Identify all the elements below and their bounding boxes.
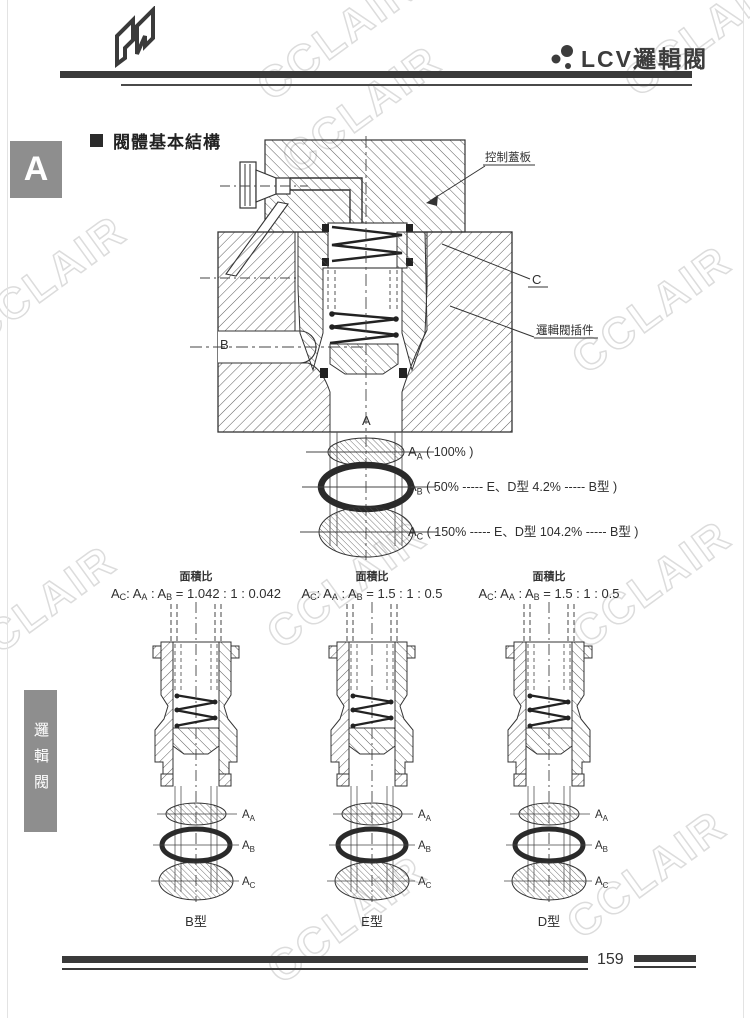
area-ratio-heading: 面積比: [180, 568, 213, 584]
watermark: CCLAIR: [0, 206, 136, 355]
valve-cross-section-figure: B A: [180, 128, 680, 570]
type-label: E型: [361, 911, 383, 930]
cartridge-drawing: [111, 602, 281, 907]
footer-rule-thin: [62, 968, 588, 970]
footer-rule-thick: [62, 956, 588, 963]
diagram-type-b: 面積比 AC: AA : AB = 1.042 : 1 : 0.042 B型: [111, 568, 281, 930]
page-edge-left: [7, 0, 8, 1018]
port-b-label: B: [220, 337, 229, 352]
diagram-type-d: 面積比 AC: AA : AB = 1.5 : 1 : 0.5 D型: [464, 568, 634, 930]
bullet-square-icon: [90, 134, 103, 147]
footer-rule-right: [634, 955, 696, 962]
area-ratio-heading: 面積比: [533, 568, 566, 584]
watermark: CCLAIR: [248, 0, 426, 111]
cartridge-drawing: [464, 602, 634, 907]
area-label-ab: AB ( 50% ----- E、D型 4.2% ----- B型 ): [408, 479, 617, 497]
type-label: B型: [185, 911, 207, 930]
page-title: LCV邏輯閥: [551, 40, 708, 74]
callout-cartridge-label: 邏輯閥插件: [536, 323, 594, 337]
title-dots-icon: [551, 42, 579, 72]
area-ratio-value: AC: AA : AB = 1.042 : 1 : 0.042: [111, 586, 281, 602]
catalog-page: AA AB AC CCLAIR CCLAIR CCLAIR CCLAIR CCL…: [0, 0, 750, 1018]
area-label-ac: AC ( 150% ----- E、D型 104.2% ----- B型 ): [408, 524, 638, 542]
cartridge-drawing: [287, 602, 457, 907]
page-edge-right: [743, 0, 744, 1018]
section-tab-a: A: [10, 141, 62, 198]
diagram-type-e: 面積比 AC: AA : AB = 1.5 : 1 : 0.5 E型: [287, 568, 457, 930]
area-ratio-value: AC: AA : AB = 1.5 : 1 : 0.5: [478, 586, 619, 602]
type-label: D型: [538, 911, 560, 930]
watermark: CCLAIR: [0, 536, 126, 685]
callout-c-label: C: [532, 272, 541, 287]
port-a-label: A: [362, 413, 371, 428]
page-title-text: LCV邏輯閥: [581, 40, 708, 74]
area-label-aa: AA ( 100% ): [408, 444, 473, 462]
callout-cover-label: 控制蓋板: [485, 150, 531, 164]
header-rule-thick: [60, 71, 692, 78]
footer-rule-right-thin: [634, 966, 696, 968]
area-ratio-heading: 面積比: [356, 568, 389, 584]
header-rule-thin: [121, 84, 692, 86]
sidebar-category-label: 邏輯閥: [24, 690, 57, 832]
page-number: 159: [597, 951, 624, 969]
area-ratio-value: AC: AA : AB = 1.5 : 1 : 0.5: [301, 586, 442, 602]
company-logo: [103, 6, 167, 73]
